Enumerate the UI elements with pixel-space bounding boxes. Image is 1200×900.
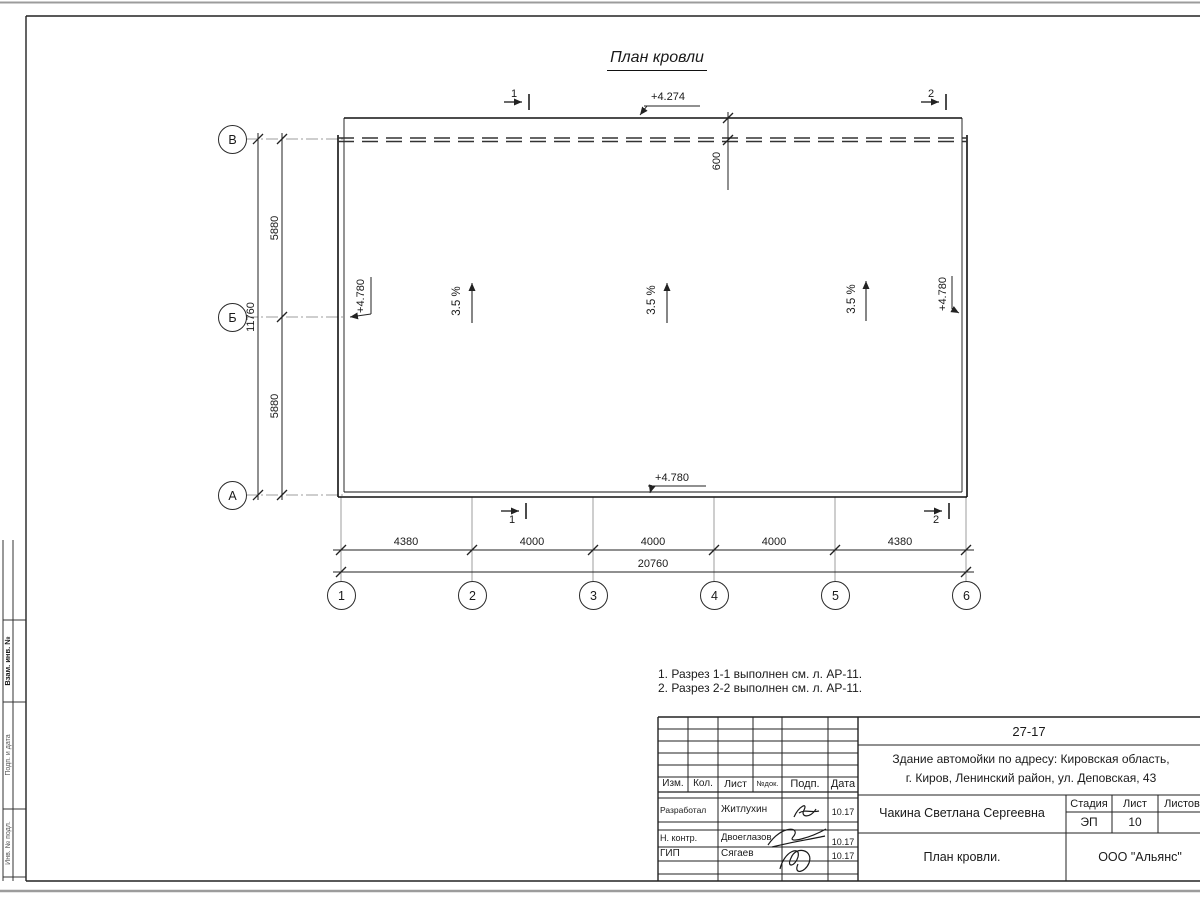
section-mark-label: 1 [508, 88, 520, 100]
tb-sheet-name: План кровли. [862, 849, 1062, 865]
tb-name: Житлухин [721, 803, 780, 817]
dim-left-span: 5880 [269, 388, 281, 424]
side-stamp-label: Инв. № подл. [3, 803, 13, 883]
tb-col-list: Лист [718, 777, 753, 791]
axis-bubble-col: 6 [952, 581, 981, 610]
side-stamp-label: Подп. и дата [3, 715, 13, 795]
dim-bottom-total: 20760 [629, 558, 677, 570]
axis-bubble-col: 2 [458, 581, 487, 610]
dim-bottom-span: 4000 [512, 536, 552, 548]
tb-company: ООО "Альянс" [1075, 849, 1200, 865]
tb-stage-label: Стадия [1067, 797, 1111, 811]
dim-bottom-span: 4380 [386, 536, 426, 548]
tb-col-kol: Кол. [688, 777, 718, 791]
tb-doc-number: 27-17 [979, 723, 1079, 739]
dim-bottom-span: 4000 [754, 536, 794, 548]
note-line: 1. Разрез 1-1 выполнен см. л. АР-11. [658, 667, 908, 680]
tb-sheets-label: Листов [1159, 797, 1200, 811]
tb-col-data: Дата [828, 777, 858, 791]
tb-sheet-value: 10 [1115, 814, 1155, 830]
elevation-left: +4.780 [355, 273, 367, 319]
axis-bubble-col: 4 [700, 581, 729, 610]
tb-author: Чакина Светлана Сергеевна [862, 805, 1062, 821]
tb-date: 10.17 [828, 836, 858, 848]
dim-bottom-span: 4000 [633, 536, 673, 548]
axis-bubble-row: В [218, 125, 247, 154]
tb-col-podp: Подп. [782, 777, 828, 791]
axis-bubble-row: А [218, 481, 247, 510]
tb-name: Двоеглазов [721, 831, 781, 845]
tb-col-izm: Изм. [658, 777, 688, 791]
axis-bubble-col: 5 [821, 581, 850, 610]
dim-parapet-offset: 600 [711, 146, 723, 176]
elevation-right: +4.780 [937, 271, 949, 317]
section-mark-label: 1 [506, 514, 518, 526]
tb-col-ndok: №док. [753, 777, 782, 791]
dimension-lines [258, 112, 974, 572]
tb-role: ГИП [660, 847, 716, 861]
tb-date: 10.17 [828, 850, 858, 862]
tb-role: Разработал [660, 803, 716, 817]
slope-label: 3.5 % [451, 281, 465, 321]
drawing-title: План кровли [607, 48, 707, 71]
slope-label: 3.5 % [846, 279, 860, 319]
section-marks [501, 94, 949, 519]
section-mark-label: 2 [930, 514, 942, 526]
tb-name: Сягаев [721, 847, 780, 861]
slope-label: 3.5 % [646, 280, 660, 320]
tb-sheet-label: Лист [1113, 797, 1157, 811]
section-mark-label: 2 [925, 88, 937, 100]
axis-bubble-col: 3 [579, 581, 608, 610]
elevation-top: +4.274 [643, 91, 693, 103]
axis-bubble-row: Б [218, 303, 247, 332]
axis-bubble-col: 1 [327, 581, 356, 610]
dim-left-span: 5880 [269, 210, 281, 246]
note-line: 2. Разрез 2-2 выполнен см. л. АР-11. [658, 681, 908, 694]
tb-project-line1: Здание автомойки по адресу: Кировская об… [866, 752, 1196, 766]
axis-lines [246, 139, 966, 581]
elevation-bottom: +4.780 [647, 472, 697, 484]
drawing-sheet: План кровли +4.274 +4.780 +4.780 +4.780 … [0, 0, 1200, 900]
tb-date: 10.17 [828, 806, 858, 818]
dim-bottom-span: 4380 [880, 536, 920, 548]
slope-arrows [472, 281, 866, 323]
dimension-ticks [253, 113, 971, 577]
tb-project-line2: г. Киров, Ленинский район, ул. Деповская… [866, 771, 1196, 785]
tb-role: Н. контр. [660, 831, 716, 845]
side-stamp-label: Взам. инв. № [3, 621, 13, 701]
tb-stage-value: ЭП [1069, 814, 1109, 830]
